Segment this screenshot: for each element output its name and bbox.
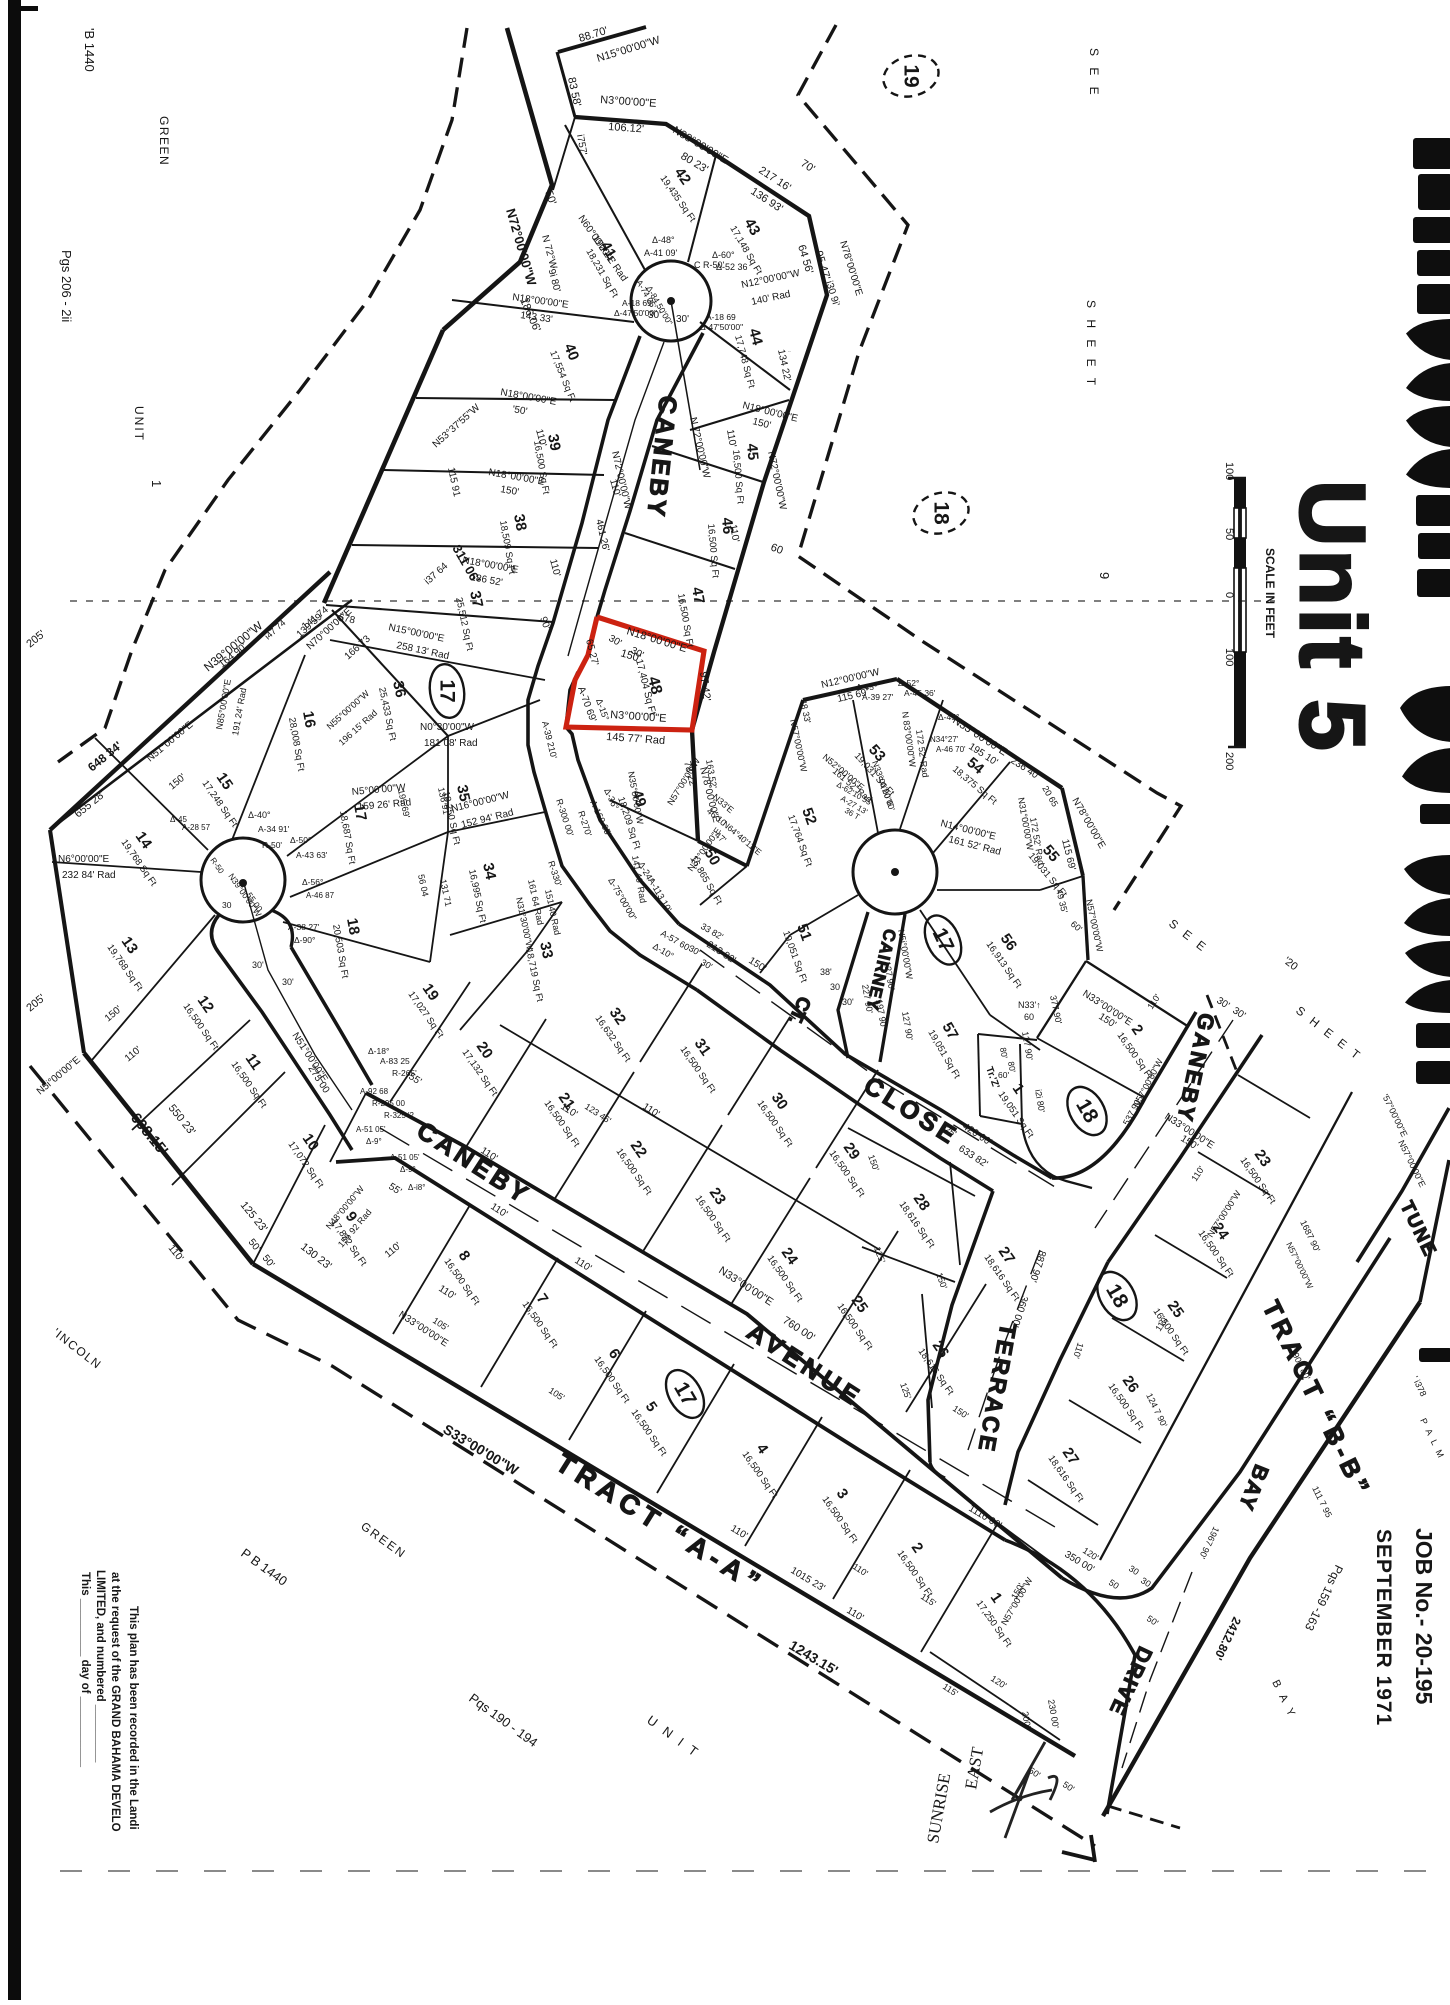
svg-text:36: 36 xyxy=(389,679,409,699)
svg-text:200: 200 xyxy=(1223,752,1235,770)
svg-text:17: 17 xyxy=(436,679,459,702)
svg-text:N6°00'00"E: N6°00'00"E xyxy=(58,854,109,865)
svg-text:30: 30 xyxy=(830,982,840,992)
svg-text:30': 30' xyxy=(676,314,689,325)
svg-text:R-295 00: R-295 00 xyxy=(372,1099,405,1108)
svg-text:38: 38 xyxy=(510,513,530,532)
svg-text:0: 0 xyxy=(1223,592,1235,598)
svg-text:at the request of the GRA: at the request of the GRAND BAHAMA DEVEL… xyxy=(109,1572,121,1832)
svg-text:30': 30' xyxy=(842,997,854,1007)
svg-text:Δ-18°: Δ-18° xyxy=(368,1046,389,1056)
svg-text:A-51 05': A-51 05' xyxy=(390,1153,420,1162)
svg-text:A-41 09': A-41 09' xyxy=(644,248,678,258)
svg-text:N34°27': N34°27' xyxy=(930,735,959,744)
svg-text:37: 37 xyxy=(466,589,486,609)
svg-text:A-34 91': A-34 91' xyxy=(258,824,290,834)
svg-text:Δ-45°: Δ-45° xyxy=(856,682,877,692)
svg-text:Δ-50°: Δ-50° xyxy=(290,835,311,845)
svg-text:A-46 70': A-46 70' xyxy=(936,745,966,754)
svg-text:SCALE IN FEET: SCALE IN FEET xyxy=(1263,548,1277,639)
svg-text:60: 60 xyxy=(1024,1012,1034,1022)
svg-text:181 08' Rad: 181 08' Rad xyxy=(424,738,478,749)
svg-text:Δ-9°: Δ-9° xyxy=(400,1165,416,1174)
svg-text:46: 46 xyxy=(718,517,736,535)
svg-text:Δ-45°: Δ-45° xyxy=(938,712,959,722)
svg-text:Δ-52°: Δ-52° xyxy=(898,678,919,688)
svg-text:UNIT: UNIT xyxy=(132,406,146,442)
svg-text:A-43 63': A-43 63' xyxy=(296,850,328,860)
svg-text:30': 30' xyxy=(282,977,294,987)
svg-text:This plan has been recorde: This plan has been recorded in the Landi xyxy=(127,1606,139,1830)
svg-text:60': 60' xyxy=(998,1070,1009,1080)
svg-text:Δ-48°: Δ-48° xyxy=(652,235,675,245)
svg-text:9: 9 xyxy=(1097,572,1112,579)
svg-text:18: 18 xyxy=(930,501,953,525)
svg-text:16: 16 xyxy=(299,710,319,729)
svg-text:Unit 5: Unit 5 xyxy=(1281,480,1383,754)
svg-text:R-50': R-50' xyxy=(262,840,282,850)
svg-text:19: 19 xyxy=(900,64,923,87)
svg-text:SEPTEMBER 1971: SEPTEMBER 1971 xyxy=(1372,1529,1395,1726)
svg-text:R-265': R-265' xyxy=(392,1068,417,1078)
svg-text:Δ-9°: Δ-9° xyxy=(366,1137,382,1146)
svg-text:38': 38' xyxy=(820,967,832,977)
svg-text:39: 39 xyxy=(544,433,564,452)
svg-text:232 84' Rad: 232 84' Rad xyxy=(62,870,116,881)
svg-text:30: 30 xyxy=(222,900,232,910)
svg-text:A-83 25: A-83 25 xyxy=(380,1056,410,1066)
svg-text:Δ-60°: Δ-60° xyxy=(712,250,735,260)
svg-text:JOB No.- 20-195: JOB No.- 20-195 xyxy=(1411,1528,1437,1705)
svg-text:Pgs 206 - 2ii: Pgs 206 - 2ii xyxy=(59,250,74,322)
svg-text:S H E E T: S H E E T xyxy=(1084,300,1098,389)
svg-text:Δ-40°: Δ-40° xyxy=(248,810,271,820)
svg-text:Δ-47'50'00": Δ-47'50'00" xyxy=(700,322,743,332)
svg-text:Δ-56°: Δ-56° xyxy=(302,877,323,887)
svg-text:33: 33 xyxy=(536,940,556,960)
svg-text:GREEN: GREEN xyxy=(157,116,171,166)
svg-text:R-325 '2: R-325 '2 xyxy=(384,1111,415,1120)
svg-text:1: 1 xyxy=(149,480,164,487)
svg-text:18: 18 xyxy=(343,917,363,936)
svg-text:N33'↑: N33'↑ xyxy=(1018,1000,1041,1010)
svg-text:LIMITED, and numbered ________: LIMITED, and numbered _________ xyxy=(94,1570,106,1763)
svg-text:35: 35 xyxy=(453,783,473,803)
svg-text:N0°30'00"W: N0°30'00"W xyxy=(420,722,474,733)
svg-text:A-18 69: A-18 69 xyxy=(706,312,736,322)
svg-text:S E E: S E E xyxy=(1087,48,1101,99)
svg-text:50: 50 xyxy=(1223,528,1235,540)
svg-text:A-46 87: A-46 87 xyxy=(306,891,335,900)
svg-text:A-39 27': A-39 27' xyxy=(862,692,894,702)
svg-text:80': 80' xyxy=(998,1047,1010,1060)
svg-text:47: 47 xyxy=(688,586,708,605)
svg-text:100: 100 xyxy=(1223,462,1235,480)
svg-text:C R-50': C R-50' xyxy=(694,260,725,270)
svg-text:A-45 36': A-45 36' xyxy=(904,688,936,698)
svg-text:106.12': 106.12' xyxy=(608,121,645,135)
svg-text:100: 100 xyxy=(1223,648,1235,666)
svg-text:A-51 05': A-51 05' xyxy=(356,1125,386,1134)
svg-text:Δ-90°: Δ-90° xyxy=(294,935,315,945)
svg-text:30': 30' xyxy=(252,960,264,970)
svg-text:A-38 27': A-38 27' xyxy=(288,922,320,932)
svg-text:45: 45 xyxy=(743,443,761,461)
svg-text:This _________ day of ______: This _________ day of ___________ xyxy=(79,1572,91,1768)
svg-text:17: 17 xyxy=(350,803,370,822)
svg-text:A-92 68: A-92 68 xyxy=(360,1087,389,1096)
svg-text:Δ-i8°: Δ-i8° xyxy=(408,1183,425,1192)
svg-text:A-28 57: A-28 57 xyxy=(182,823,211,832)
svg-text:'B 1440: 'B 1440 xyxy=(82,28,97,72)
